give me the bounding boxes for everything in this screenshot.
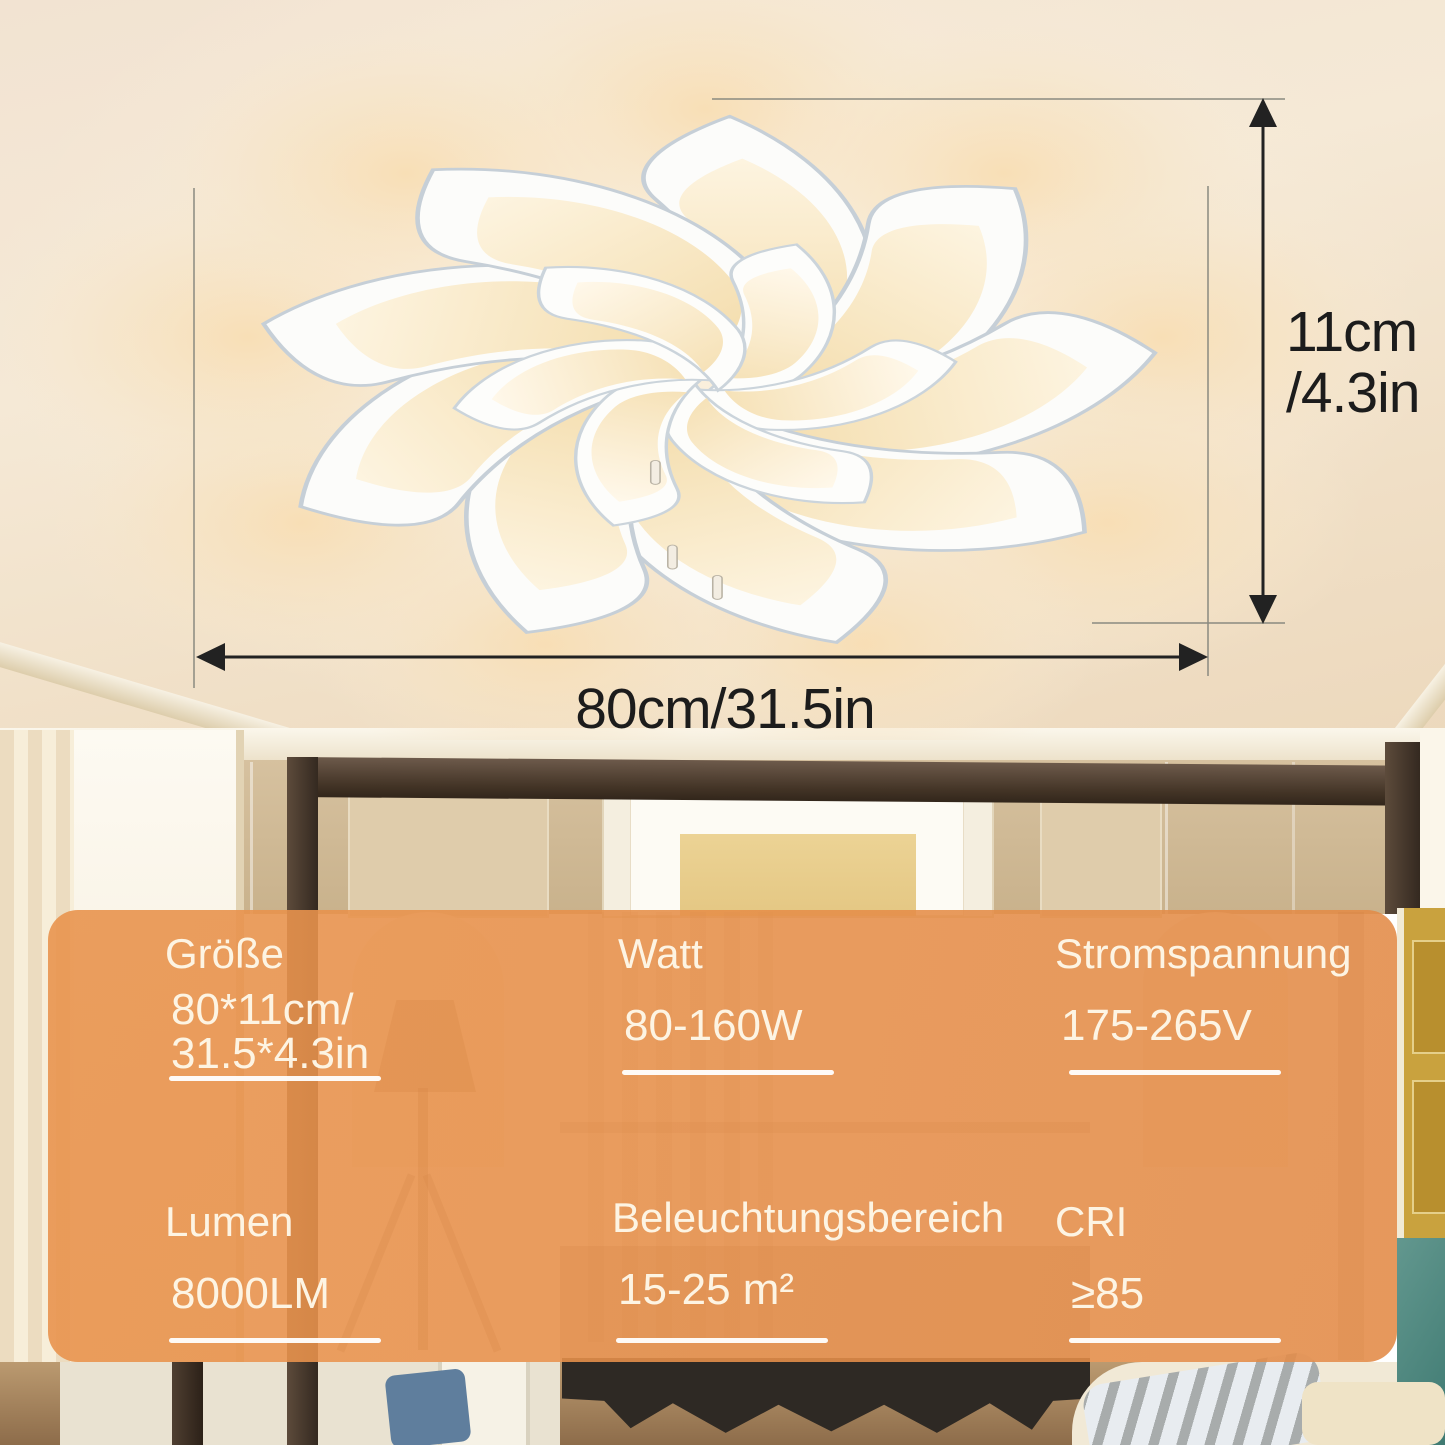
spec-value: 80*11cm/ — [171, 988, 585, 1032]
arrow-left-icon — [196, 643, 225, 671]
spec-label: Watt — [618, 930, 1038, 978]
spec-label: Stromspannung — [1055, 930, 1445, 978]
width-dimension-label: 80cm/31.5in — [575, 676, 875, 742]
spec-value: 175-265V — [1061, 1004, 1445, 1048]
spec-cell-cri: CRI ≥85 — [1055, 1198, 1445, 1348]
height-dimension-label: 11cm /4.3in — [1286, 302, 1419, 424]
arrow-up-icon — [1249, 98, 1277, 127]
spec-label: Beleuchtungsbereich — [612, 1194, 1032, 1242]
spec-underline — [169, 1338, 381, 1343]
product-image: 11cm /4.3in 80cm/31.5in Größe 80*11cm/ 3… — [0, 0, 1445, 1445]
spec-value: 80-160W — [624, 1004, 1038, 1048]
height-dimension-cm: 11cm — [1286, 302, 1419, 363]
spec-cell-beleuchtungsbereich: Beleuchtungsbereich 15-25 m² — [612, 1194, 1032, 1344]
spec-panel: Größe 80*11cm/ 31.5*4.3in Watt 80-160W S… — [48, 910, 1397, 1362]
spec-cell-groesse: Größe 80*11cm/ 31.5*4.3in — [165, 930, 585, 1080]
spec-underline — [169, 1076, 381, 1081]
spec-value: ≥85 — [1071, 1272, 1445, 1316]
spec-cell-lumen: Lumen 8000LM — [165, 1198, 585, 1348]
arrow-down-icon — [1249, 595, 1277, 624]
picture-art — [680, 834, 916, 916]
bed-post — [1385, 742, 1420, 914]
extension-ticks — [194, 99, 1285, 688]
spec-cell-stromspannung: Stromspannung 175-265V — [1055, 930, 1445, 1080]
arrow-right-icon — [1179, 643, 1208, 671]
spec-cell-watt: Watt 80-160W — [618, 930, 1038, 1080]
window-right — [1420, 730, 1445, 915]
spec-label: Größe — [165, 930, 585, 978]
spec-underline — [616, 1338, 828, 1343]
spec-underline — [622, 1070, 834, 1075]
height-dimension-in: /4.3in — [1286, 363, 1419, 424]
spec-label: Lumen — [165, 1198, 585, 1246]
spec-value: 8000LM — [171, 1272, 585, 1316]
spec-value: 31.5*4.3in — [171, 1032, 585, 1076]
dimension-annotations — [0, 0, 1445, 740]
spec-underline — [1069, 1338, 1281, 1343]
wall-seam — [250, 762, 253, 914]
dimension-lines — [214, 116, 1263, 657]
door-panel — [1412, 1080, 1445, 1214]
blue-chair — [384, 1368, 471, 1445]
spec-underline — [1069, 1070, 1281, 1075]
arrowheads — [196, 98, 1277, 671]
bed-post — [172, 1362, 203, 1445]
cream-pillow — [1302, 1382, 1445, 1445]
spec-value: 15-25 m² — [618, 1268, 1032, 1312]
spec-label: CRI — [1055, 1198, 1445, 1246]
